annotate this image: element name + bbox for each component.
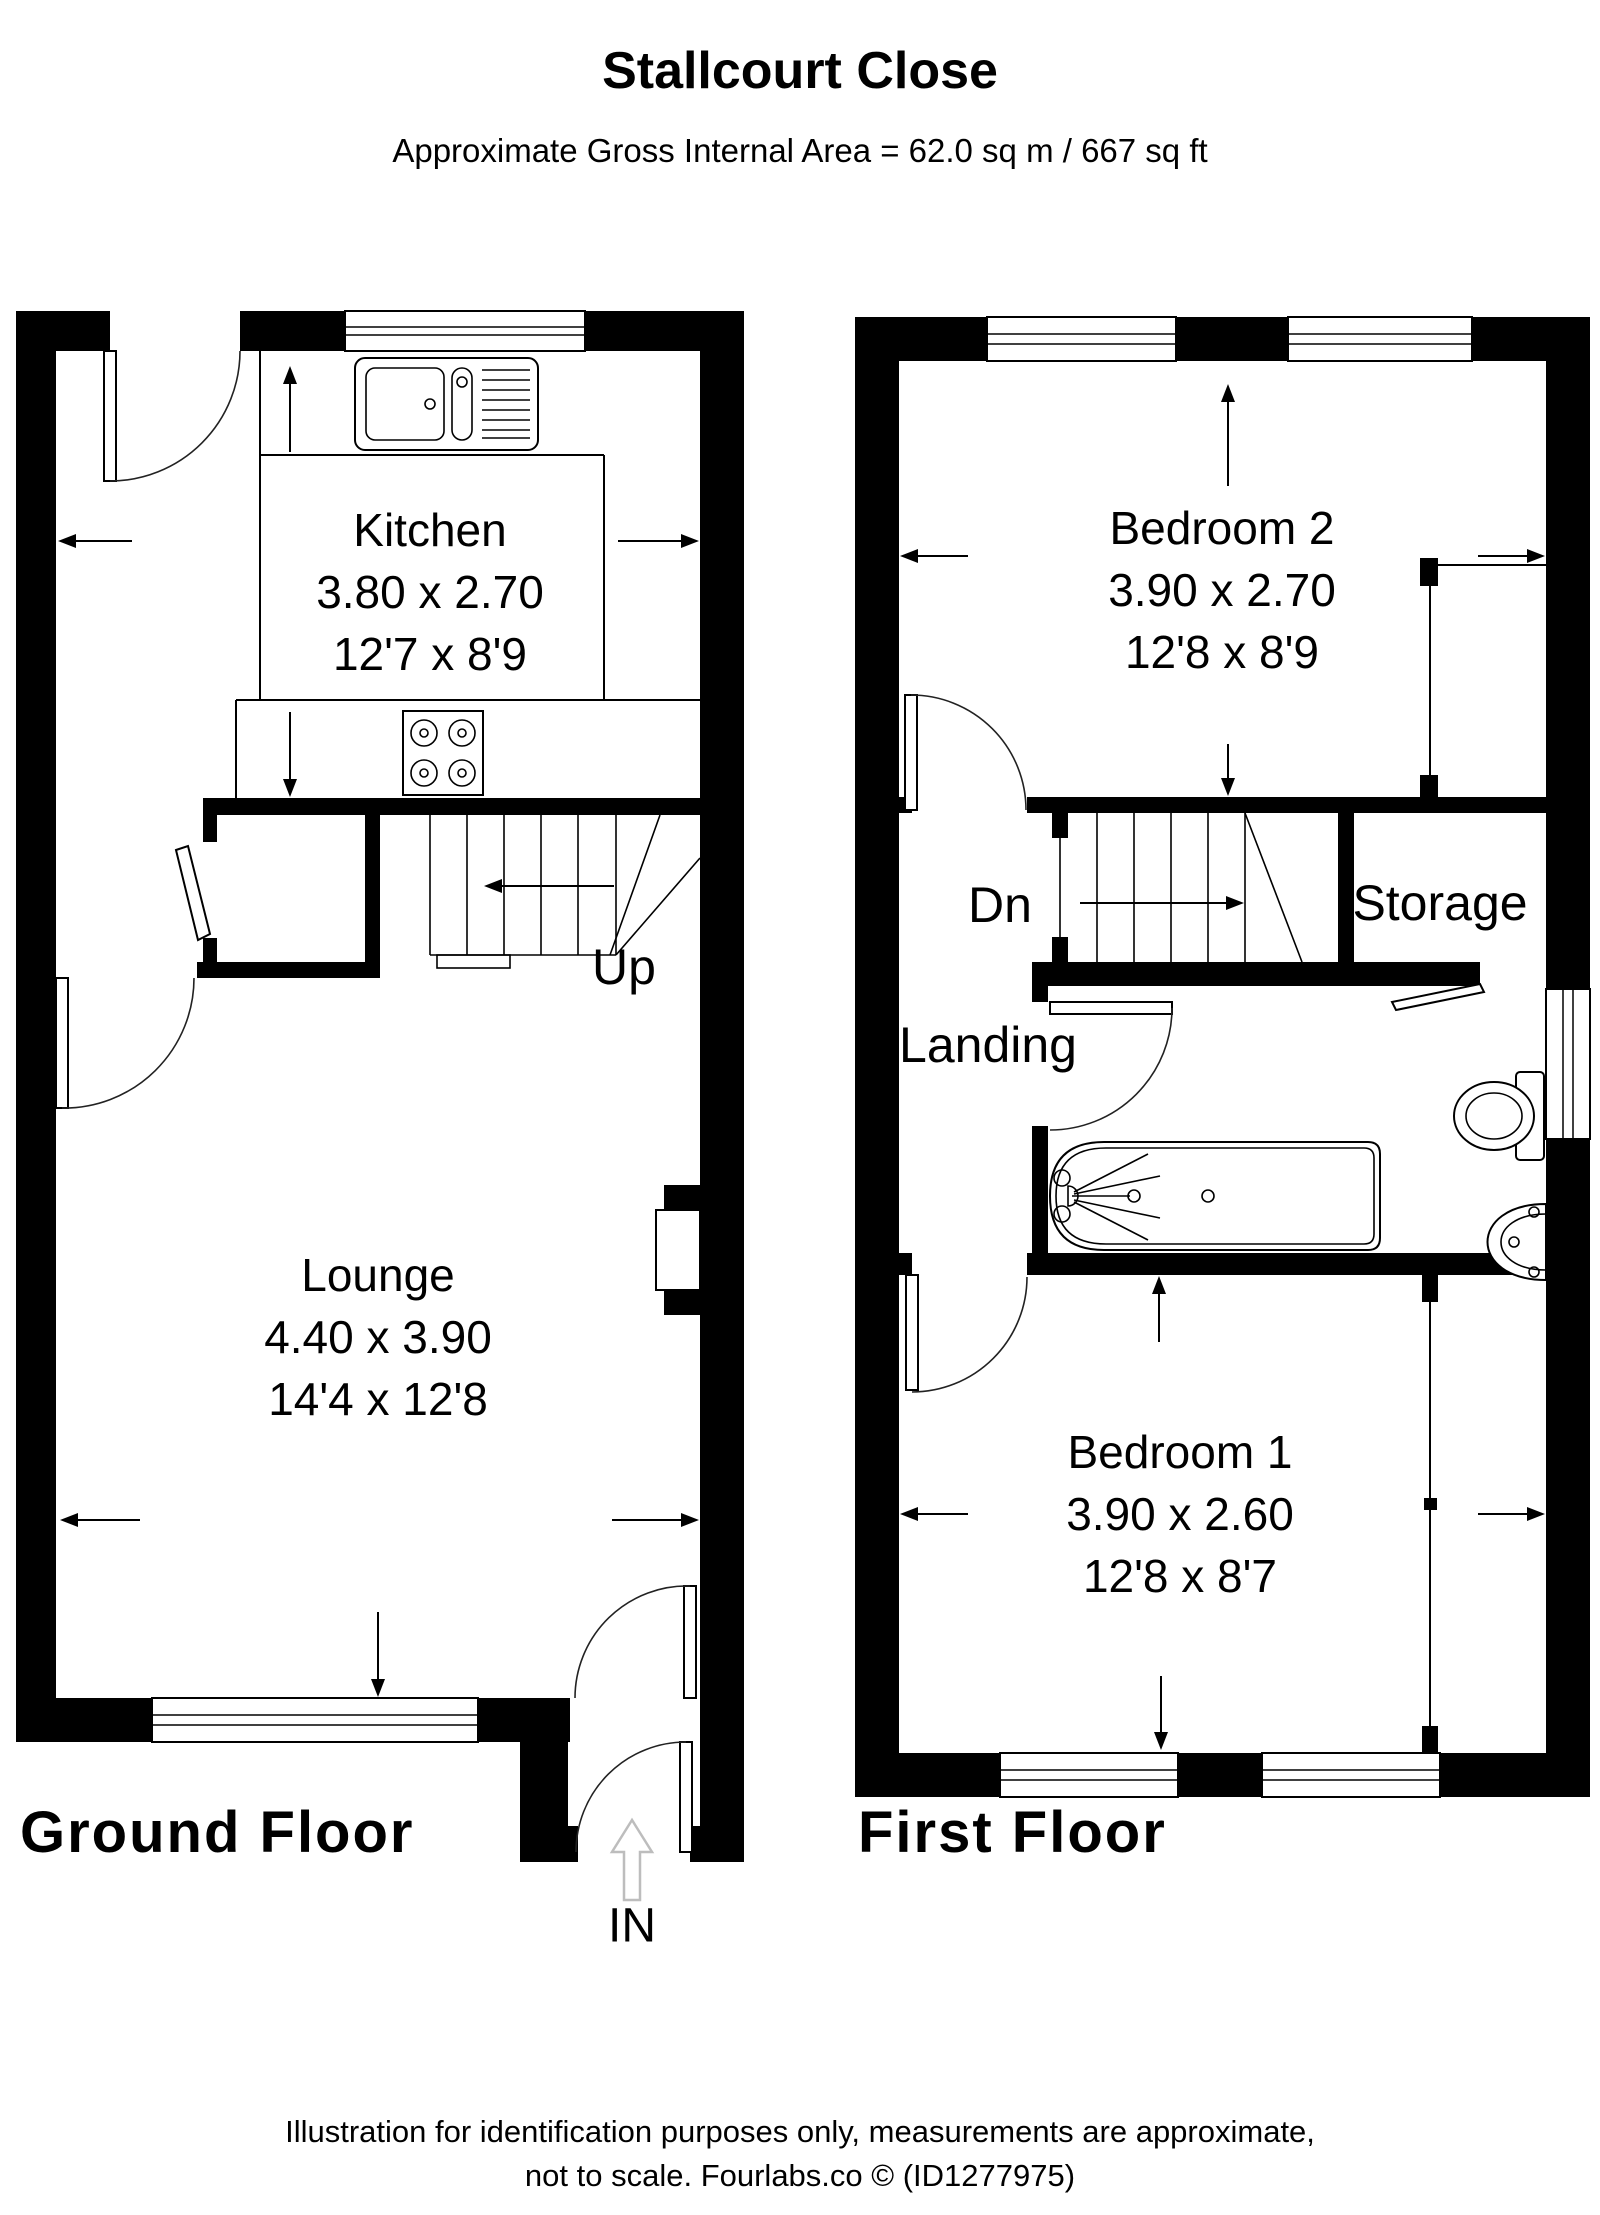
bathroom-window [1546, 989, 1590, 1139]
wall-segment [1546, 1139, 1590, 1797]
kitchen-sink [355, 358, 538, 450]
bedroom2-door [905, 695, 1026, 810]
footer-disclaimer-line2: not to scale. Fourlabs.co © (ID1277975) [525, 2158, 1075, 2193]
arrow-up-icon [283, 366, 297, 452]
wall-segment [1178, 1753, 1262, 1797]
wall-segment [899, 1253, 912, 1275]
ground-floor-title: Ground Floor [20, 1800, 415, 1865]
arrow-right-icon [1478, 1507, 1545, 1521]
arrow-down-icon [1154, 1676, 1168, 1750]
storage-label: Storage [1352, 875, 1527, 931]
floorplan-canvas: Stallcourt Close Approximate Gross Inter… [0, 0, 1600, 2215]
arrow-left-icon [58, 534, 132, 548]
page-subtitle: Approximate Gross Internal Area = 62.0 s… [392, 132, 1207, 169]
bedroom2-dim-imperial: 12'8 x 8'9 [1125, 626, 1319, 678]
wall-segment [520, 1742, 568, 1862]
wall-segment [16, 1698, 152, 1742]
kitchen-window [345, 311, 585, 351]
first-floor-title: First Floor [858, 1800, 1167, 1865]
bedroom2-window [987, 317, 1176, 361]
toilet [1454, 1072, 1544, 1160]
arrow-down-icon [283, 712, 297, 797]
staircase-up [430, 815, 700, 968]
floorplan-page: Stallcourt Close Approximate Gross Inter… [0, 0, 1600, 2215]
bathtub [1050, 1142, 1380, 1250]
wall-segment [1032, 986, 1048, 1002]
wall-segment [197, 962, 380, 978]
bedroom1-dim-metric: 3.90 x 2.60 [1066, 1488, 1294, 1540]
wall-segment [1032, 962, 1480, 986]
lounge-door [56, 978, 194, 1108]
wall-segment [1027, 1253, 1546, 1275]
wall-segment [855, 317, 899, 1797]
staircase-down [1060, 813, 1302, 962]
front-door [576, 1742, 692, 1852]
arrow-up-icon [1152, 1276, 1166, 1342]
cupboard-door [176, 846, 210, 940]
arrow-down-icon [371, 1612, 385, 1697]
wall-segment [1176, 317, 1288, 361]
kitchen-dim-imperial: 12'7 x 8'9 [333, 628, 527, 680]
arrow-left-icon [900, 549, 968, 563]
wall-segment [700, 311, 744, 1862]
wall-segment [1440, 1753, 1590, 1797]
arrow-right-icon [1478, 549, 1545, 563]
arrow-left-icon [60, 1513, 140, 1527]
stairs-down-label: Dn [968, 877, 1032, 933]
wall-segment [16, 311, 56, 1742]
bedroom1-door [906, 1275, 1027, 1392]
entrance-arrow-icon [612, 1820, 652, 1900]
wall-segment [1032, 1126, 1048, 1253]
bedroom1-label: Bedroom 1 [1067, 1426, 1292, 1478]
wall-segment [365, 815, 380, 962]
wall-segment [1546, 317, 1590, 989]
entrance-label: IN [608, 1900, 656, 1953]
wall-segment [1422, 1726, 1438, 1753]
ground-floor-plan: Kitchen 3.80 x 2.70 12'7 x 8'9 Lounge 4.… [16, 311, 744, 1953]
wall-segment [664, 1290, 700, 1315]
storage-door [1392, 984, 1484, 1010]
landing-label: Landing [899, 1017, 1077, 1073]
arrow-left-icon [900, 1507, 968, 1521]
arrow-right-icon [612, 1513, 699, 1527]
wall-segment [203, 938, 217, 965]
wall-segment [478, 1698, 570, 1742]
wall-segment [664, 1185, 700, 1210]
lounge-window [152, 1698, 478, 1742]
porch-inner-door [575, 1586, 696, 1698]
bedroom1-window [1262, 1753, 1440, 1797]
kitchen-label: Kitchen [353, 504, 506, 556]
wall-segment [1027, 797, 1546, 813]
stairs-direction-arrow [1080, 896, 1244, 910]
wall-segment [203, 798, 700, 815]
wall-segment [203, 815, 217, 842]
wall-segment [240, 311, 345, 351]
bedroom2-window [1288, 317, 1472, 361]
kitchen-dim-metric: 3.80 x 2.70 [316, 566, 544, 618]
chimney-recess [656, 1210, 700, 1290]
stairs-up-label: Up [592, 939, 656, 995]
arrow-right-icon [618, 534, 699, 548]
back-door [104, 351, 240, 481]
lounge-dim-imperial: 14'4 x 12'8 [268, 1373, 488, 1425]
bedroom1-dim-imperial: 12'8 x 8'7 [1083, 1550, 1277, 1602]
lounge-dim-metric: 4.40 x 3.90 [264, 1311, 492, 1363]
bedroom1-window [1000, 1753, 1178, 1797]
bedroom2-dim-metric: 3.90 x 2.70 [1108, 564, 1336, 616]
hob [403, 711, 483, 795]
lounge-label: Lounge [301, 1249, 455, 1301]
bedroom2-label: Bedroom 2 [1109, 502, 1334, 554]
wall-segment [1422, 1275, 1438, 1302]
footer-disclaimer-line1: Illustration for identification purposes… [285, 2114, 1315, 2149]
wall-segment [855, 1753, 1000, 1797]
arrow-up-icon [1221, 384, 1235, 486]
first-floor-plan: Bedroom 2 3.90 x 2.70 12'8 x 8'9 Dn Stor… [855, 317, 1590, 1865]
arrow-down-icon [1221, 744, 1235, 796]
bedroom2-wardrobe [1426, 565, 1546, 797]
page-title: Stallcourt Close [602, 42, 998, 100]
